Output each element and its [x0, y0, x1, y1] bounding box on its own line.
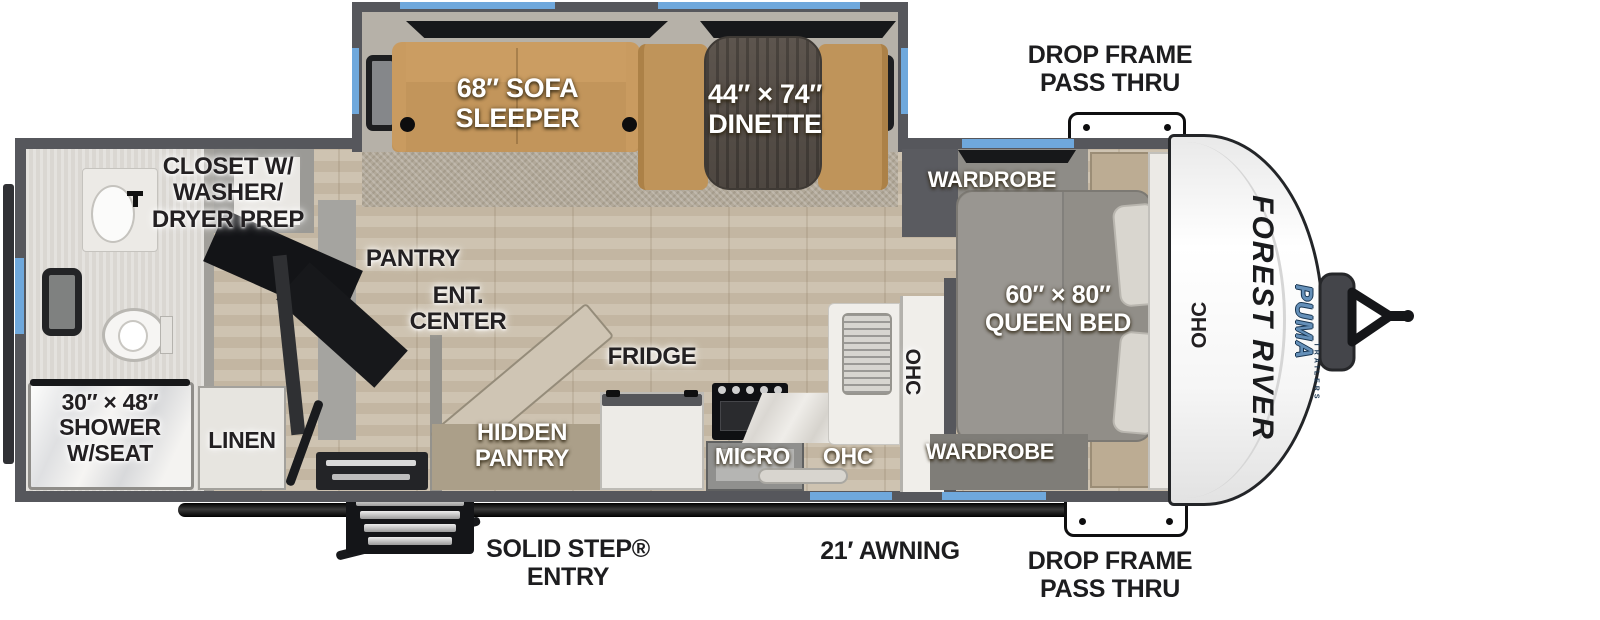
shower-label: 30″ × 48″SHOWERW/SEAT	[34, 390, 186, 466]
bedroom-front-wall-block	[902, 149, 958, 237]
fridge-label: FRIDGE	[592, 344, 712, 370]
bottom-window-bedroom	[942, 492, 1046, 500]
bottom-window-kitchen	[810, 492, 892, 500]
awning-bar	[178, 503, 1126, 517]
kitchen-tray	[758, 468, 848, 484]
rear-bumper	[3, 184, 14, 464]
linen-label: LINEN	[200, 428, 284, 453]
floorplan-image: 68″ SOFASLEEPER 44″ × 74″DINETTE CLOSET …	[0, 0, 1600, 620]
bath-side-window	[42, 268, 82, 336]
slide-window-left-top	[400, 2, 555, 9]
dinette-label: 44″ × 74″DINETTE	[645, 80, 885, 139]
wardrobe-bottom-label: WARDROBE	[910, 440, 1070, 464]
bedroom-top-window	[962, 139, 1074, 148]
queen-bed-label: 60″ × 80″QUEEN BED	[968, 282, 1148, 337]
brand-manufacturer: FOREST RIVER	[1245, 195, 1279, 441]
toilet-tank	[160, 316, 173, 354]
awning-label: 21′ AWNING	[800, 538, 980, 566]
fridge	[600, 392, 704, 490]
solid-step-entry-label: SOLID STEP®ENTRY	[468, 536, 668, 591]
ent-center-label: ENT.CENTER	[378, 283, 538, 336]
slide-window-right-side	[901, 48, 908, 114]
hitch-icon	[1318, 252, 1414, 392]
entry-interior-step	[316, 452, 428, 490]
drop-frame-bottom-label: DROP FRAMEPASS THRU	[1020, 548, 1200, 603]
toilet-icon	[102, 308, 166, 362]
slide-window-left-side	[352, 48, 359, 114]
closet-label: CLOSET W/WASHER/DRYER PREP	[138, 154, 318, 233]
ohc-kitchen-vertical-label: OHC	[900, 349, 924, 396]
hidden-pantry-label: HIDDENPANTRY	[442, 420, 602, 473]
sofa-label: 68″ SOFASLEEPER	[405, 74, 630, 133]
sofa-window-valance	[406, 21, 668, 38]
ohc-kitchen-label: OHC	[798, 444, 898, 469]
micro-label: MICRO	[700, 444, 805, 469]
pantry-label: PANTRY	[348, 246, 478, 272]
wardrobe-top-label: WARDROBE	[912, 168, 1072, 192]
drop-frame-top-label: DROP FRAMEPASS THRU	[1020, 42, 1200, 97]
rear-wall-window	[15, 258, 24, 334]
shower-door-track	[30, 379, 190, 386]
bedroom-window-valance	[958, 150, 1076, 163]
ohc-front-label: OHC	[1188, 302, 1212, 349]
slide-window-right-top	[658, 2, 860, 9]
brand-model-sub: TRAILERS	[1313, 343, 1320, 402]
sink-icon	[842, 313, 892, 395]
